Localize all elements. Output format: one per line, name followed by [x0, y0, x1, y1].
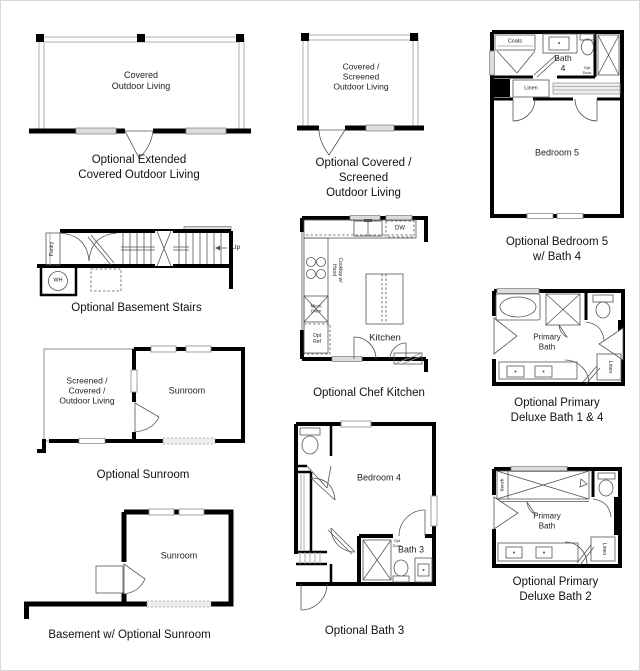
door-swing-icon [494, 318, 517, 354]
chef-kitchen-drawing [294, 212, 444, 380]
tub-icon [496, 294, 540, 320]
caption-chef-kitchen: Optional Chef Kitchen [294, 386, 444, 401]
basement-optional-sunroom-drawing [17, 504, 242, 624]
post-icon [236, 34, 244, 42]
door-leaf-icon [583, 366, 600, 384]
sunroom-label: Sunroom [161, 551, 198, 562]
door-swing-icon [60, 233, 117, 265]
caption-optional-sunroom: Optional Sunroom [37, 468, 249, 483]
pantry-label: Pantry [50, 242, 56, 256]
window-icon [147, 601, 211, 607]
room-label-covered-outdoor-living: Covered Outdoor Living [112, 70, 171, 92]
caption-covered-screened-outdoor-living: Optional Covered / Screened Outdoor Livi… [291, 156, 436, 201]
plan-primary-deluxe-bath-2: Bench Primary Bath Linen Optional Primar… [487, 457, 624, 607]
window-icon [151, 346, 176, 352]
door-swing-icon [124, 564, 145, 594]
window-icon [79, 439, 105, 444]
bedroom4-label: Bedroom 4 [357, 473, 401, 484]
window-icon [490, 51, 495, 75]
shower-icon [363, 540, 391, 580]
window-icon [163, 438, 215, 444]
door-swing-icon [399, 510, 425, 536]
linen-label: Linen [600, 543, 606, 555]
landing-dashed [91, 269, 121, 291]
plan-basement-stairs: Pantry WH Up Optional Basement Stairs [29, 221, 244, 323]
optional-bath3-drawing [287, 412, 442, 614]
plan-covered-screened-outdoor-living: Covered / Screened Outdoor Living Option… [291, 29, 436, 189]
window-icon [557, 214, 583, 219]
closet [296, 472, 311, 552]
door-swing-icon [593, 499, 611, 517]
vanity-sink-icon [415, 558, 432, 582]
post-icon [137, 34, 145, 42]
double-vanity-icon [499, 362, 577, 379]
window-icon [332, 357, 362, 362]
bath3-label: Bath 3 [398, 545, 424, 556]
shower-icon [546, 294, 580, 337]
door-swing-icon [390, 343, 406, 359]
door-swing-icon [135, 403, 159, 432]
wh-label: WH [53, 278, 62, 285]
kitchen-island [366, 274, 403, 324]
hatch-band [553, 83, 620, 94]
bench-label: Bench [499, 479, 504, 492]
door-swing-icon [328, 528, 355, 554]
window-icon [341, 421, 371, 427]
dw-label: DW [395, 225, 405, 232]
plan-optional-bath3: Bedroom 4 Opt Door Bath 3 Optional Bath … [287, 412, 442, 646]
floor-plan-options-sheet: Covered Outdoor Living Optional Extended… [0, 0, 640, 671]
plan-basement-optional-sunroom: Sunroom Basement w/ Optional Sunroom [17, 504, 242, 648]
window-icon [179, 509, 204, 515]
sunroom-label: Sunroom [169, 386, 206, 397]
door-swing-icon [586, 322, 604, 340]
toilet-icon [300, 428, 320, 454]
linen-label: Linen [524, 86, 537, 93]
shower-bench-icon [497, 471, 589, 514]
coats-label: Coats [508, 39, 522, 46]
opt-ref-label: Opt Ref [313, 333, 321, 345]
primary-bath-label: Primary Bath [533, 332, 561, 351]
double-vanity-icon [498, 543, 578, 561]
toilet-icon [393, 560, 409, 582]
caption-basement-optional-sunroom: Basement w/ Optional Sunroom [17, 628, 242, 643]
toilet-icon [598, 473, 615, 496]
caption-primary-deluxe-bath-1-4: Optional Primary Deluxe Bath 1 & 4 [487, 396, 627, 426]
window-icon [186, 346, 211, 352]
window-icon [527, 214, 553, 219]
covered-screened-outdoor-living-drawing [291, 29, 436, 161]
linen-label: Linen [606, 361, 612, 373]
caption-bedroom5-bath4: Optional Bedroom 5 w/ Bath 4 [487, 235, 627, 265]
window-icon [431, 496, 437, 526]
kitchen-sink-icon [354, 219, 382, 236]
primary-bath-label: Primary Bath [533, 511, 561, 530]
post-icon [410, 33, 418, 41]
basement-stairs-drawing [29, 221, 244, 301]
door-swing-icon [311, 478, 335, 500]
door-panel-icon [96, 566, 123, 593]
window-icon [497, 289, 539, 294]
window-icon [76, 128, 116, 134]
plan-bedroom5-bath4: Coats Bath 4 Opt Door Linen Bedroom 5 Op… [487, 27, 627, 269]
caption-extended-covered-outdoor-living: Optional Extended Covered Outdoor Living [21, 153, 257, 183]
cooktop-icon [307, 258, 326, 279]
plan-chef-kitchen: DW Cooktop w/ Hood Micro Oven Opt Ref Ki… [294, 212, 444, 408]
door-swing-icon [513, 99, 535, 121]
up-label: Up [232, 244, 240, 252]
door-swing-icon [319, 130, 345, 155]
bath4-label: Bath 4 [554, 53, 572, 73]
toilet-icon [580, 34, 595, 55]
landing-walls [296, 552, 331, 584]
micro-oven-label: Micro Oven [311, 304, 322, 315]
window-icon [186, 128, 226, 134]
plan-extended-covered-outdoor-living: Covered Outdoor Living Optional Extended… [21, 29, 257, 191]
plan-primary-deluxe-bath-1-4: Primary Bath Linen Optional Primary Delu… [487, 284, 627, 430]
screened-covered-label: Screened / Covered / Outdoor Living [59, 376, 114, 407]
cooktop-hood-label: Cooktop w/ Hood [330, 257, 342, 282]
window-icon [131, 370, 137, 392]
vanity-sink-icon [543, 34, 577, 53]
plan-optional-sunroom: Screened / Covered / Outdoor Living Sunr… [37, 344, 249, 486]
post-icon [36, 34, 44, 42]
opt-door-label: Opt Door [583, 66, 592, 76]
stairs-icon [121, 231, 221, 266]
caption-basement-stairs: Optional Basement Stairs [29, 301, 244, 316]
window-icon [149, 509, 174, 515]
door-swing-icon [301, 584, 327, 610]
window-icon [366, 125, 394, 131]
door-swing-icon [575, 99, 597, 121]
room-label-covered-screened: Covered / Screened Outdoor Living [324, 62, 399, 93]
caption-primary-deluxe-bath-2: Optional Primary Deluxe Bath 2 [487, 575, 624, 605]
post-icon [301, 33, 309, 41]
bedroom5-label: Bedroom 5 [535, 148, 579, 159]
extended-covered-outdoor-living-drawing [21, 29, 257, 164]
toilet-icon [593, 295, 613, 318]
door-swing-icon [599, 328, 623, 360]
kitchen-label: Kitchen [369, 332, 401, 343]
shower-icon [598, 35, 619, 75]
caption-optional-bath3: Optional Bath 3 [287, 624, 442, 639]
